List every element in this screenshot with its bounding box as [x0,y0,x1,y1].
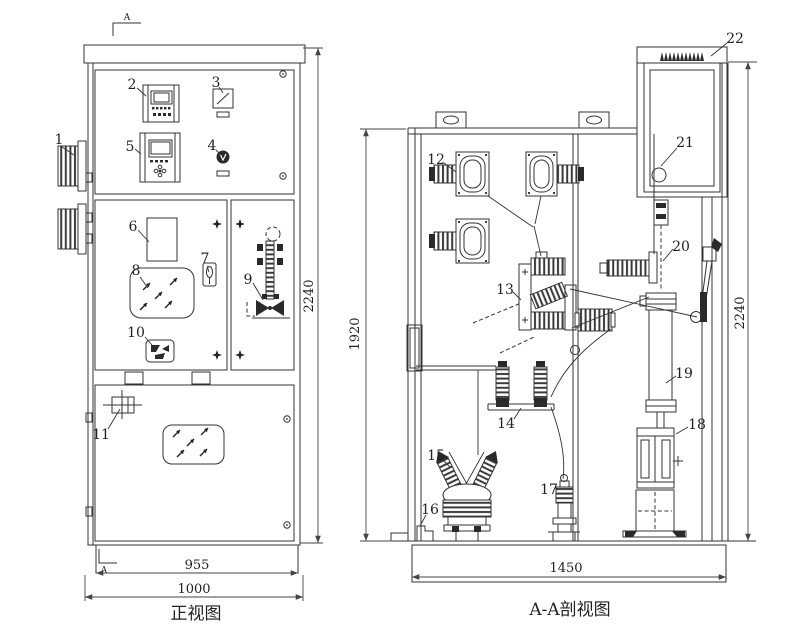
callout-12: 12 [427,152,445,168]
lifting-lug [579,112,609,128]
lifting-lug [436,112,466,128]
callout-15: 15 [427,448,445,464]
callout-10: 10 [127,325,145,341]
callout-16: 16 [421,502,439,518]
section-marker-top-label: A [123,13,131,23]
dim-front-height: 2240 [302,279,317,312]
callout-22: 22 [726,31,744,47]
callout-8: 8 [132,263,141,279]
callout-21: 21 [676,135,694,151]
dim-front-door-width: 955 [185,558,210,573]
callout-19: 19 [675,366,693,382]
callout-9: 9 [244,272,253,288]
front-view-title: 正视图 [171,604,222,624]
callout-3: 3 [212,75,221,91]
callout-5: 5 [126,139,135,155]
callout-2: 2 [128,77,137,93]
callout-4: 4 [208,138,217,154]
engineering-drawing: A [0,0,787,627]
dim-front-overall-width: 1000 [177,582,210,597]
callout-6: 6 [129,219,138,235]
callout-18: 18 [688,417,706,433]
callout-11: 11 [92,427,110,443]
section-marker-bottom-label: A [100,566,108,576]
dim-section-height: 2240 [733,296,748,329]
callout-20: 20 [672,239,690,255]
switchgear-drawing: A [0,0,787,627]
callout-13: 13 [496,282,514,298]
through-wall-bushing [575,309,615,331]
callout-1: 1 [55,132,64,148]
callout-17: 17 [540,482,558,498]
section-view-title: A-A剖视图 [528,600,610,620]
dim-section-width: 1450 [549,561,582,576]
callout-14: 14 [497,416,515,432]
callout-7: 7 [201,251,210,267]
dim-section-inner-height: 1920 [348,317,363,350]
